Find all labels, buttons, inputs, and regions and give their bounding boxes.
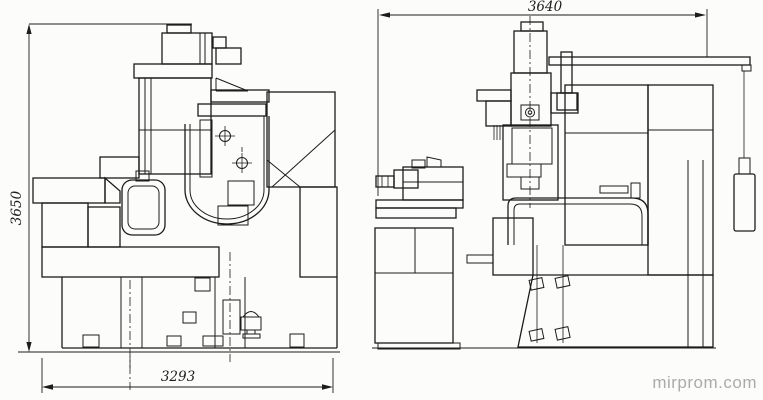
pendant-control — [734, 71, 755, 231]
watermark: mirprom.com — [652, 373, 757, 393]
electrical-cabinet — [375, 228, 460, 349]
dimension-label-front-width: 3640 — [528, 0, 563, 15]
center-mark-icon — [215, 126, 235, 146]
technical-drawing-svg: 3650 3293 — [0, 0, 763, 400]
pump-motor — [241, 312, 261, 339]
hose-loop — [122, 171, 165, 235]
work-table — [376, 157, 463, 218]
dimension-label-side-height: 3650 — [9, 190, 25, 225]
hose-u-bend — [185, 116, 269, 224]
front-view: 3640 — [372, 0, 755, 349]
side-view: 3650 3293 — [9, 24, 340, 393]
drawing-canvas: 3650 3293 — [0, 0, 763, 400]
center-mark-icon — [232, 147, 252, 173]
side-view-machine — [33, 25, 340, 390]
side-view-width-dimension: 3293 — [42, 356, 333, 393]
front-view-machine — [372, 16, 755, 349]
dimension-label-side-width: 3293 — [161, 369, 195, 385]
tie-rods — [529, 245, 570, 343]
